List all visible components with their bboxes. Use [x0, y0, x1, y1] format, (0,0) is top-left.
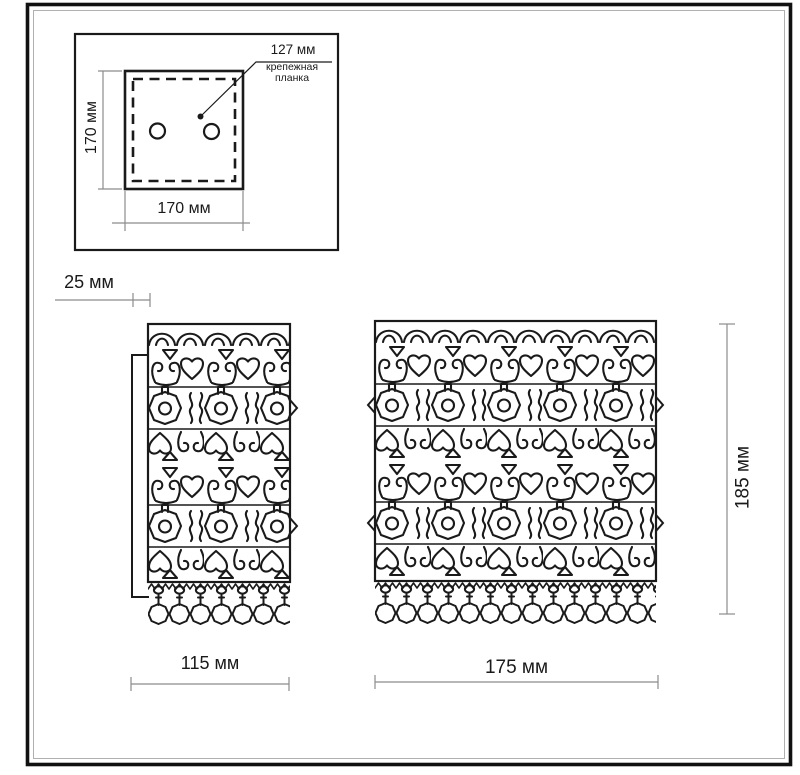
wall-backplate: [132, 355, 149, 597]
dim-25: [55, 293, 150, 307]
dim-label-front-height: 185 мм: [733, 418, 750, 538]
side-view-drawing: [132, 324, 297, 630]
front-view-drawing: [368, 321, 663, 629]
dim-label-plate-height: 170 мм: [83, 70, 100, 185]
bracket-name-line2: планка: [275, 72, 309, 84]
dim-label-front-width: 175 мм: [375, 657, 658, 679]
dim-label-depth: 25 мм: [52, 272, 126, 293]
crystal-fringe: [148, 582, 290, 630]
dim-115: [131, 677, 289, 691]
dim-label-bracket-width: 127 мм: [254, 42, 332, 57]
drawing-canvas: 127 мм крепежная планка 170 мм 170 мм 25…: [0, 0, 800, 775]
bracket-name-label: крепежная планка: [250, 62, 334, 83]
dim-label-plate-width: 170 мм: [125, 200, 243, 218]
dim-label-side-width: 115 мм: [131, 653, 289, 674]
crystal-fringe: [375, 581, 656, 629]
